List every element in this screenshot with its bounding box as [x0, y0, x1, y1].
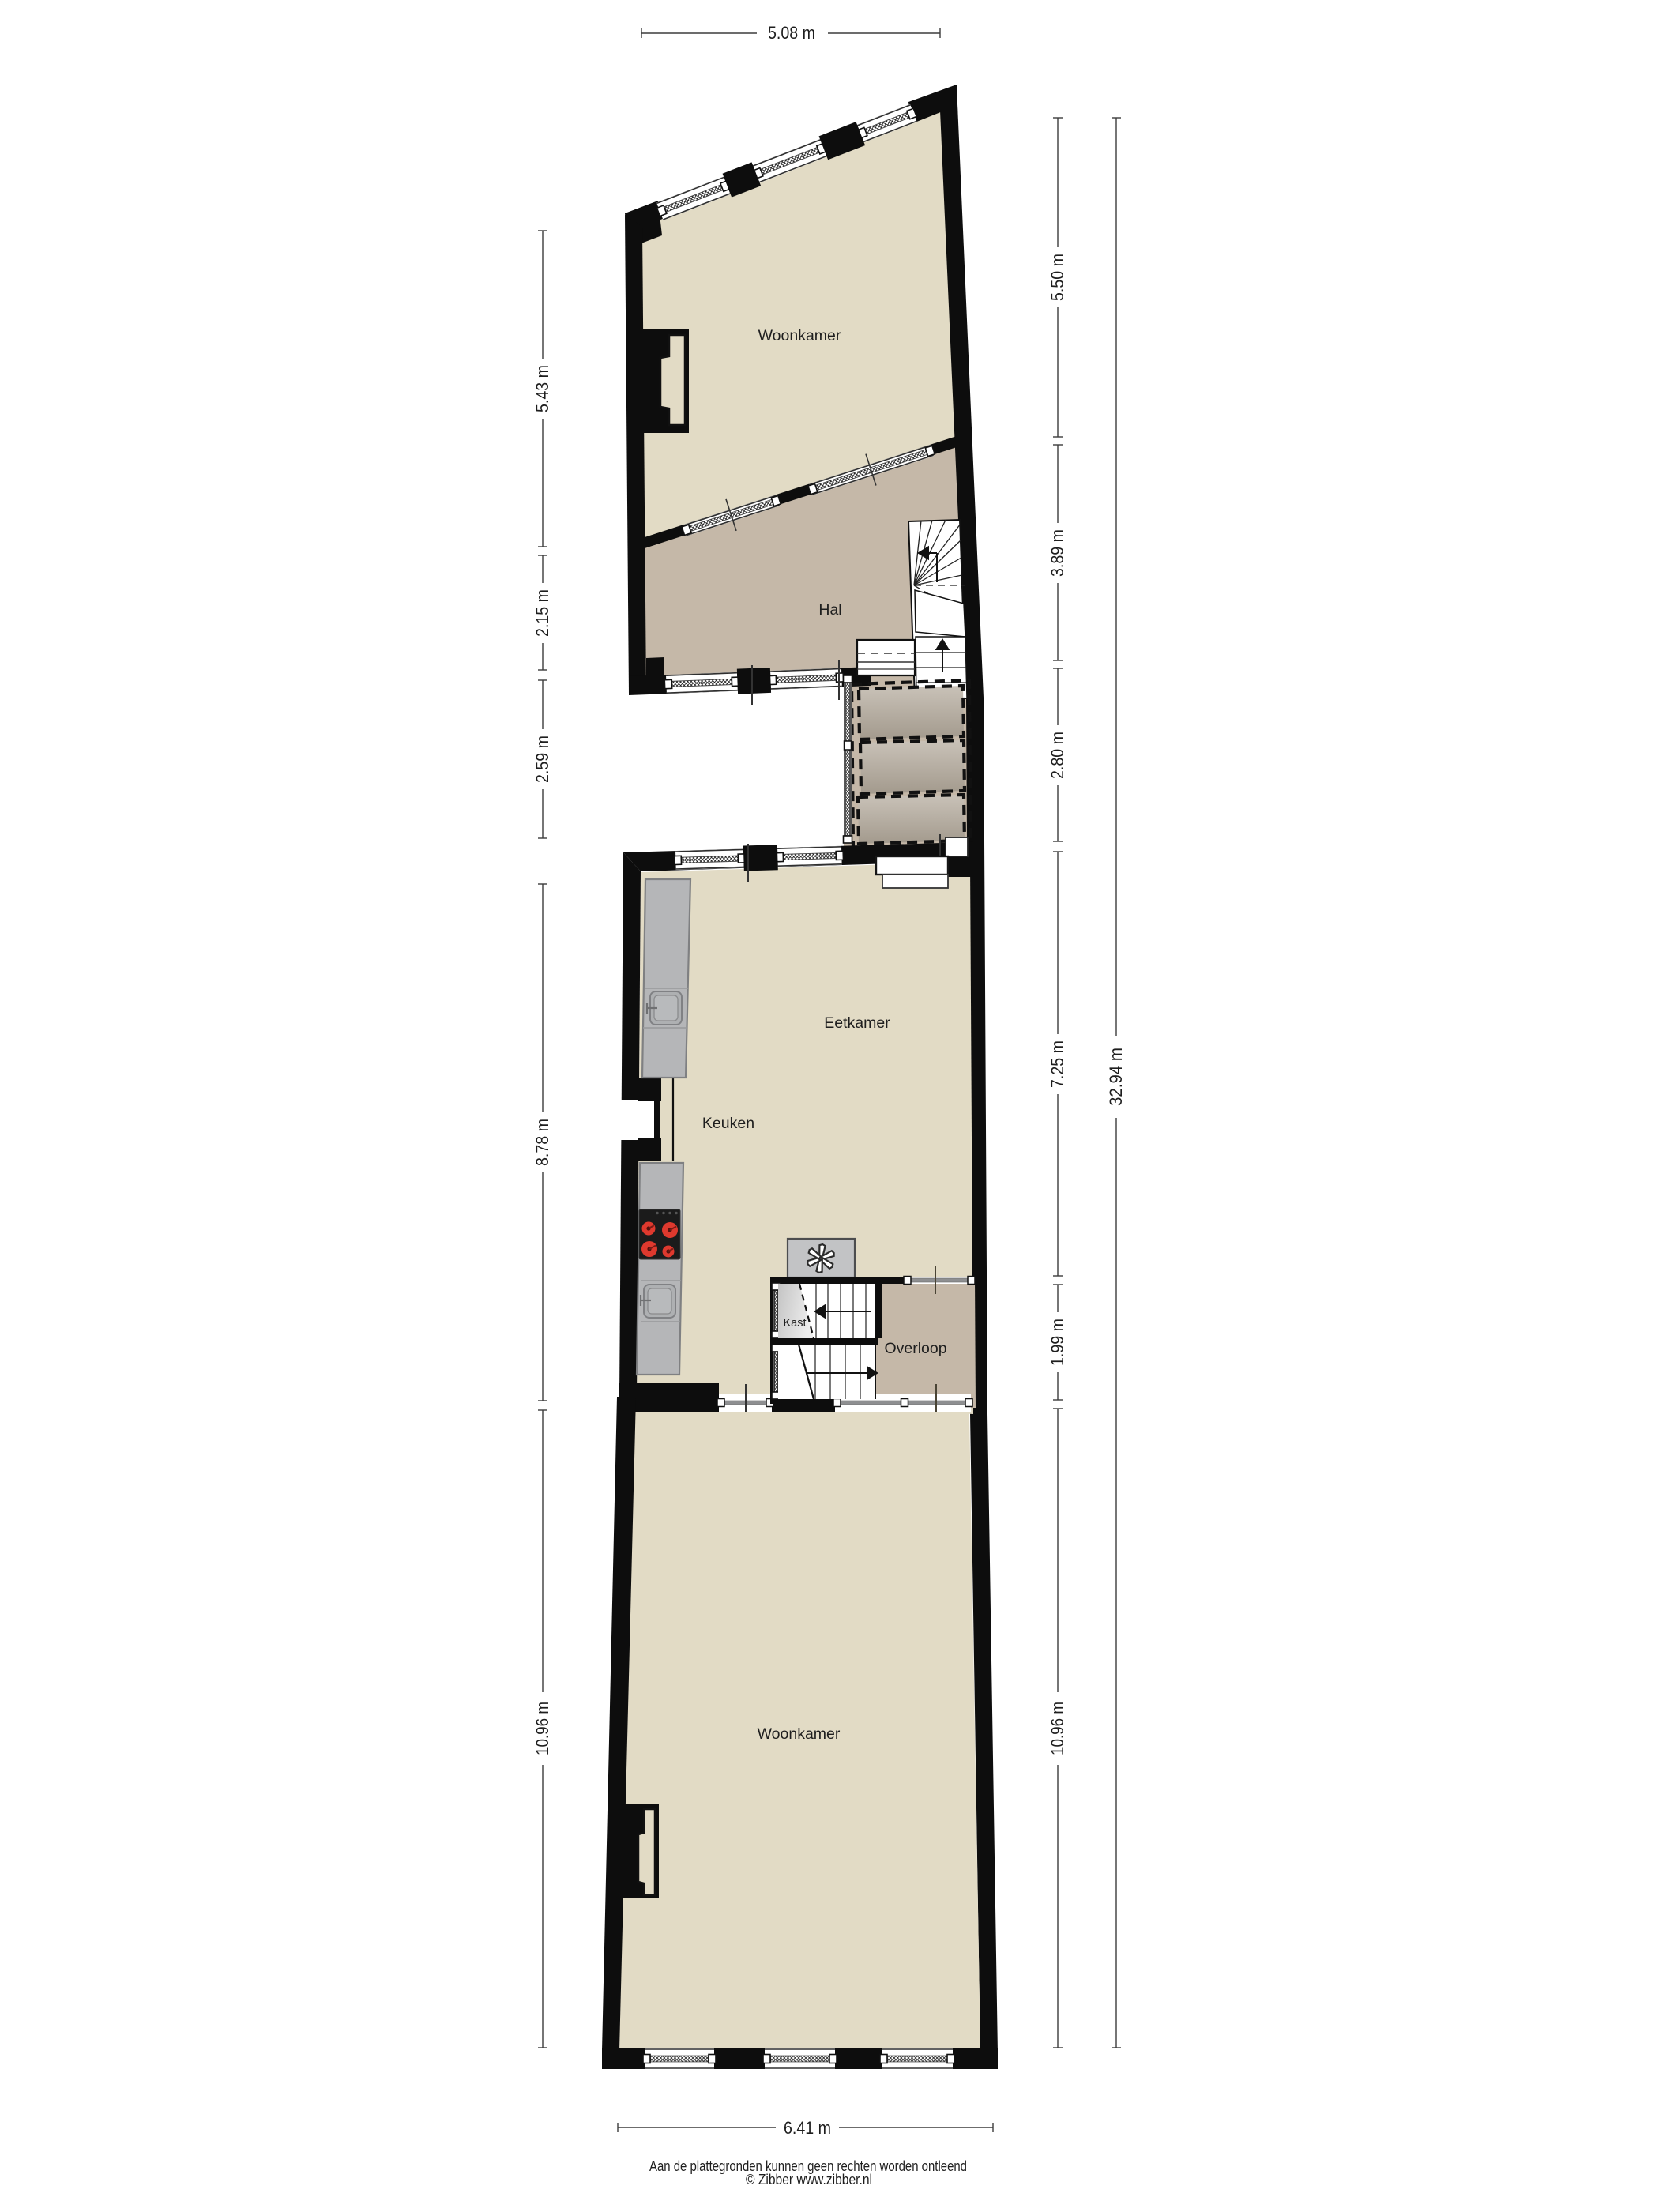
svg-text:5.50 m: 5.50 m	[1048, 254, 1067, 301]
svg-text:10.96 m: 10.96 m	[1048, 1702, 1067, 1755]
svg-text:Overloop: Overloop	[884, 1340, 946, 1357]
svg-text:7.25 m: 7.25 m	[1048, 1040, 1067, 1088]
svg-text:2.15 m: 2.15 m	[532, 589, 552, 637]
svg-text:8.78 m: 8.78 m	[532, 1119, 552, 1166]
svg-text:10.96 m: 10.96 m	[532, 1702, 552, 1755]
svg-text:1.99 m: 1.99 m	[1048, 1319, 1067, 1366]
svg-text:Eetkamer: Eetkamer	[824, 1014, 890, 1032]
svg-text:Kast: Kast	[783, 1317, 806, 1330]
svg-text:Woonkamer: Woonkamer	[758, 327, 841, 344]
svg-text:2.59 m: 2.59 m	[532, 735, 552, 783]
svg-text:2.80 m: 2.80 m	[1048, 732, 1067, 779]
svg-text:5.43 m: 5.43 m	[532, 365, 552, 412]
svg-text:Hal: Hal	[818, 601, 841, 619]
svg-text:Woonkamer: Woonkamer	[758, 1725, 841, 1743]
svg-text:© Zibber www.zibber.nl: © Zibber www.zibber.nl	[746, 2172, 872, 2188]
svg-text:3.89 m: 3.89 m	[1048, 529, 1067, 577]
svg-text:5.08 m: 5.08 m	[768, 23, 815, 43]
svg-text:32.94 m: 32.94 m	[1106, 1048, 1126, 1106]
svg-text:Keuken: Keuken	[702, 1115, 754, 1132]
svg-text:6.41 m: 6.41 m	[784, 2118, 831, 2138]
